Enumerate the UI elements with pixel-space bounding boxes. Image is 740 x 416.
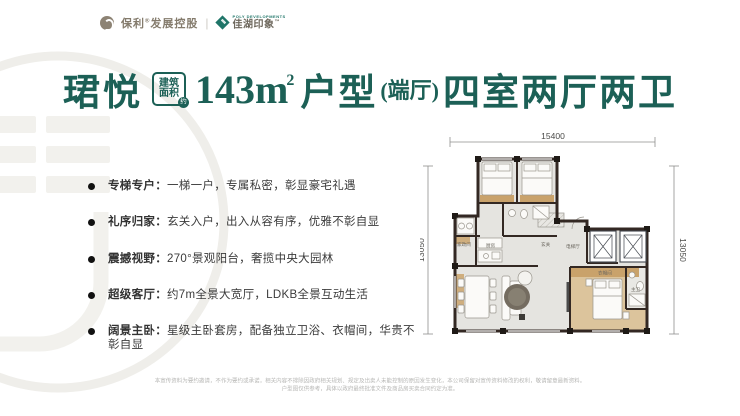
label-master-bath: 主卫 <box>631 286 641 292</box>
title-rooms-label: 四室两厅两卫 <box>443 62 677 116</box>
disclaimer-line-1: 本宣传资料为要约邀请，不作为要约或承诺，相关内容不排除因政府相关规划、规定及出卖… <box>76 378 665 387</box>
label-foyer: 玄关 <box>541 241 551 248</box>
title-area-value: 143m2 <box>195 66 294 113</box>
partner-logo-text: POLY DEVELOPMENTS佳湖印象™ <box>233 15 286 30</box>
title-paren-label: (端厅) <box>380 73 439 105</box>
badge-approx-dot: 约 <box>178 97 189 108</box>
label-elevator-hall: 电梯厅 <box>566 243 580 250</box>
feature-item: 超级客厅：约7m全景大宽厅，LDKB全景互动生活 <box>88 289 418 303</box>
feature-item: 礼序归家：玄关入户，出入从容有序，优雅不彰自显 <box>88 216 418 230</box>
header-logos: 保利®发展控股 | POLY DEVELOPMENTS佳湖印象™ <box>100 15 286 31</box>
disclaimer-line-2: 户型图仅供参考，具体以政府最终批准文件及商品房买卖合同约定为准。 <box>76 386 665 395</box>
poly-logo-text: 保利®发展控股 <box>121 15 198 31</box>
dim-right-label: 13050 <box>678 238 688 262</box>
logo-separator: | <box>205 16 208 30</box>
title-project-name: 珺悦 <box>63 62 143 116</box>
bullet-dot <box>88 328 95 335</box>
tv-unit <box>567 282 570 312</box>
feature-item: 阔景主卧：星级主卧套房，配备独立卫浴、衣帽间，华贵不彰自显 <box>88 325 418 353</box>
feature-item: 专梯专户：一梯一户，专属私密，彰显豪宅礼遇 <box>88 180 418 194</box>
trademark-mark: ™ <box>275 19 281 25</box>
partner-logo: POLY DEVELOPMENTS佳湖印象™ <box>216 15 286 30</box>
bullet-dot <box>88 256 95 263</box>
title-type-label: 户型 <box>300 62 376 116</box>
legal-disclaimer: 本宣传资料为要约邀请，不作为要约或承诺，相关内容不排除因政府相关规划、规定及出卖… <box>76 378 665 395</box>
feature-list: 专梯专户：一梯一户，专属私密，彰显豪宅礼遇 礼序归家：玄关入户，出入从容有序，优… <box>88 180 418 375</box>
poly-logo-icon <box>100 16 114 30</box>
page-title: 珺悦 建筑 面积 约 143m2 户型 (端厅) 四室两厅两卫 <box>0 62 740 116</box>
floor-plan: 15400 13050 13050 <box>420 126 710 372</box>
built-area-badge: 建筑 面积 约 <box>152 72 186 106</box>
label-kitchen: 厨房 <box>486 242 496 249</box>
bullet-dot <box>88 219 95 226</box>
marketing-slide: 保利®发展控股 | POLY DEVELOPMENTS佳湖印象™ 珺悦 建筑 面… <box>0 0 740 416</box>
dim-left-label: 13050 <box>420 238 426 262</box>
floor-lamp <box>519 314 525 320</box>
living-room-rug-inner <box>508 288 526 306</box>
feature-item: 震撼视野：270°景观阳台，奢揽中央大园林 <box>88 253 418 267</box>
dim-top-label: 15400 <box>541 131 565 141</box>
bullet-dot <box>88 183 95 190</box>
label-utility: 家政间 <box>457 241 471 248</box>
partner-diamond-icon <box>215 16 229 30</box>
label-closet: 衣帽间 <box>598 270 612 277</box>
bullet-dot <box>88 292 95 299</box>
side-table <box>518 271 532 285</box>
